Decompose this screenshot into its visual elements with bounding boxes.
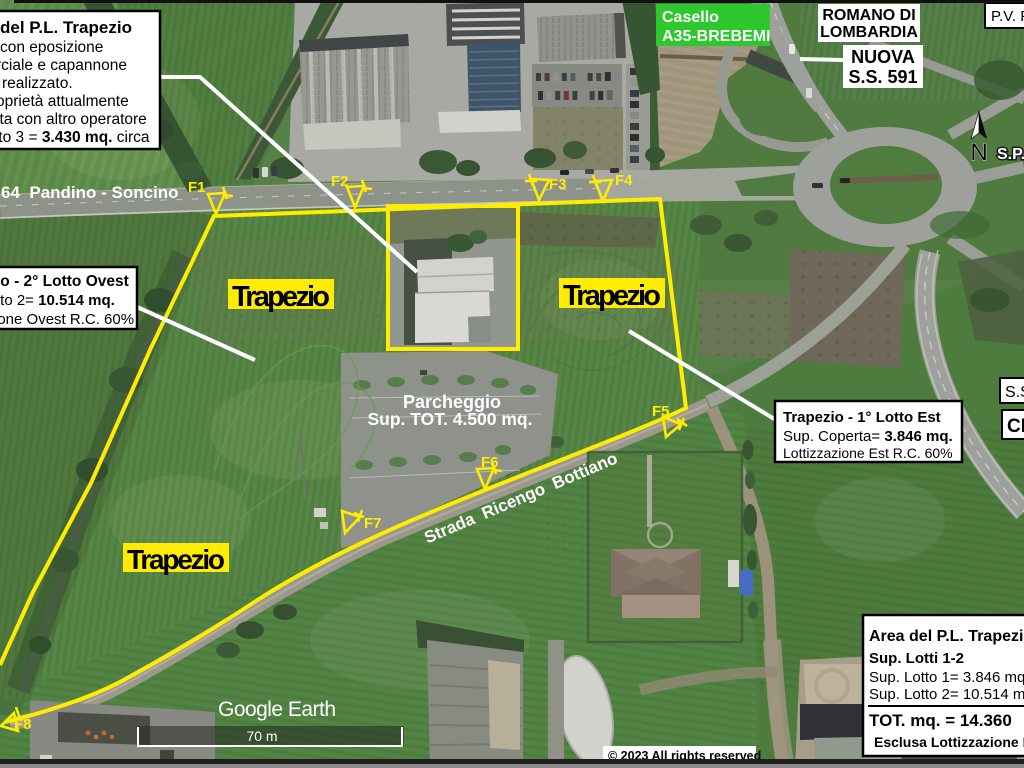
svg-text:F6: F6 — [481, 454, 499, 471]
svg-text:ione Ovest R.C. 60%: ione Ovest R.C. 60% — [0, 311, 134, 328]
svg-text:Sup. Lotti 1-2: Sup. Lotti 1-2 — [869, 650, 964, 667]
svg-text:oprietà attualmente: oprietà attualmente — [0, 93, 129, 110]
svg-text:Trapezio: Trapezio — [232, 281, 330, 313]
svg-text:ita con altro operatore: ita con altro operatore — [0, 111, 147, 128]
svg-text:F7: F7 — [364, 515, 382, 532]
svg-text:TOT. mq. = 14.360: TOT. mq. = 14.360 — [869, 711, 1012, 730]
svg-text:F2: F2 — [331, 173, 349, 190]
svg-text:S.S. 591: S.S. 591 — [848, 67, 917, 87]
svg-text:Sup. Lotto 2= 10.514 m: Sup. Lotto 2= 10.514 m — [869, 686, 1024, 703]
svg-text:70 m: 70 m — [246, 728, 277, 744]
svg-text:Sup. Coperta= 3.846 mq.: Sup. Coperta= 3.846 mq. — [783, 428, 953, 445]
svg-text:F1: F1 — [188, 179, 206, 196]
svg-text:Trapezio: Trapezio — [563, 280, 661, 312]
svg-text:Trapezio: Trapezio — [127, 544, 225, 575]
svg-text:del P.L. Trapezio: del P.L. Trapezio — [0, 18, 132, 37]
svg-text:S.P. 2: S.P. 2 — [997, 146, 1024, 163]
svg-text:Trapezio - 1° Lotto Est: Trapezio - 1° Lotto Est — [783, 409, 941, 426]
svg-text:Google Earth: Google Earth — [218, 698, 336, 721]
svg-text:tto 2= 10.514 mq.: tto 2= 10.514 mq. — [0, 292, 115, 309]
svg-text:io - 2° Lotto Ovest: io - 2° Lotto Ovest — [0, 273, 129, 290]
svg-text:rciale e capannone: rciale e capannone — [0, 57, 127, 74]
svg-text:Sup. Lotto 1= 3.846 mq: Sup. Lotto 1= 3.846 mq — [869, 669, 1024, 686]
svg-text:realizzato.: realizzato. — [2, 75, 73, 92]
svg-text:F5: F5 — [652, 403, 670, 420]
svg-text:Sup. TOT. 4.500 mq.: Sup. TOT. 4.500 mq. — [367, 409, 532, 429]
svg-text:S.S: S.S — [1005, 384, 1024, 401]
svg-text:con eposizione: con eposizione — [0, 39, 103, 56]
svg-text:P.V. F: P.V. F — [991, 8, 1024, 25]
svg-text:F4: F4 — [615, 172, 633, 189]
svg-text:A35-BREBEMI: A35-BREBEMI — [662, 28, 770, 45]
svg-text:tto 3 = 3.430 mq. circa: tto 3 = 3.430 mq. circa — [0, 129, 150, 146]
svg-text:64 Pandino - Soncino: 64 Pandino - Soncino — [1, 183, 179, 202]
svg-text:Area del P.L. Trapezio: Area del P.L. Trapezio — [869, 628, 1024, 645]
svg-text:F8: F8 — [14, 716, 32, 733]
svg-text:N: N — [970, 139, 987, 166]
svg-text:Lottizzazione Est R.C. 60%: Lottizzazione Est R.C. 60% — [783, 445, 953, 461]
svg-text:Esclusa Lottizzazione N: Esclusa Lottizzazione N — [874, 734, 1024, 750]
svg-text:NUOVA: NUOVA — [851, 47, 915, 67]
svg-text:Casello: Casello — [662, 9, 719, 26]
svg-text:LOMBARDIA: LOMBARDIA — [820, 24, 918, 41]
svg-text:F3: F3 — [549, 176, 567, 193]
svg-text:CR: CR — [1007, 416, 1024, 437]
svg-text:ROMANO DI: ROMANO DI — [822, 7, 915, 24]
